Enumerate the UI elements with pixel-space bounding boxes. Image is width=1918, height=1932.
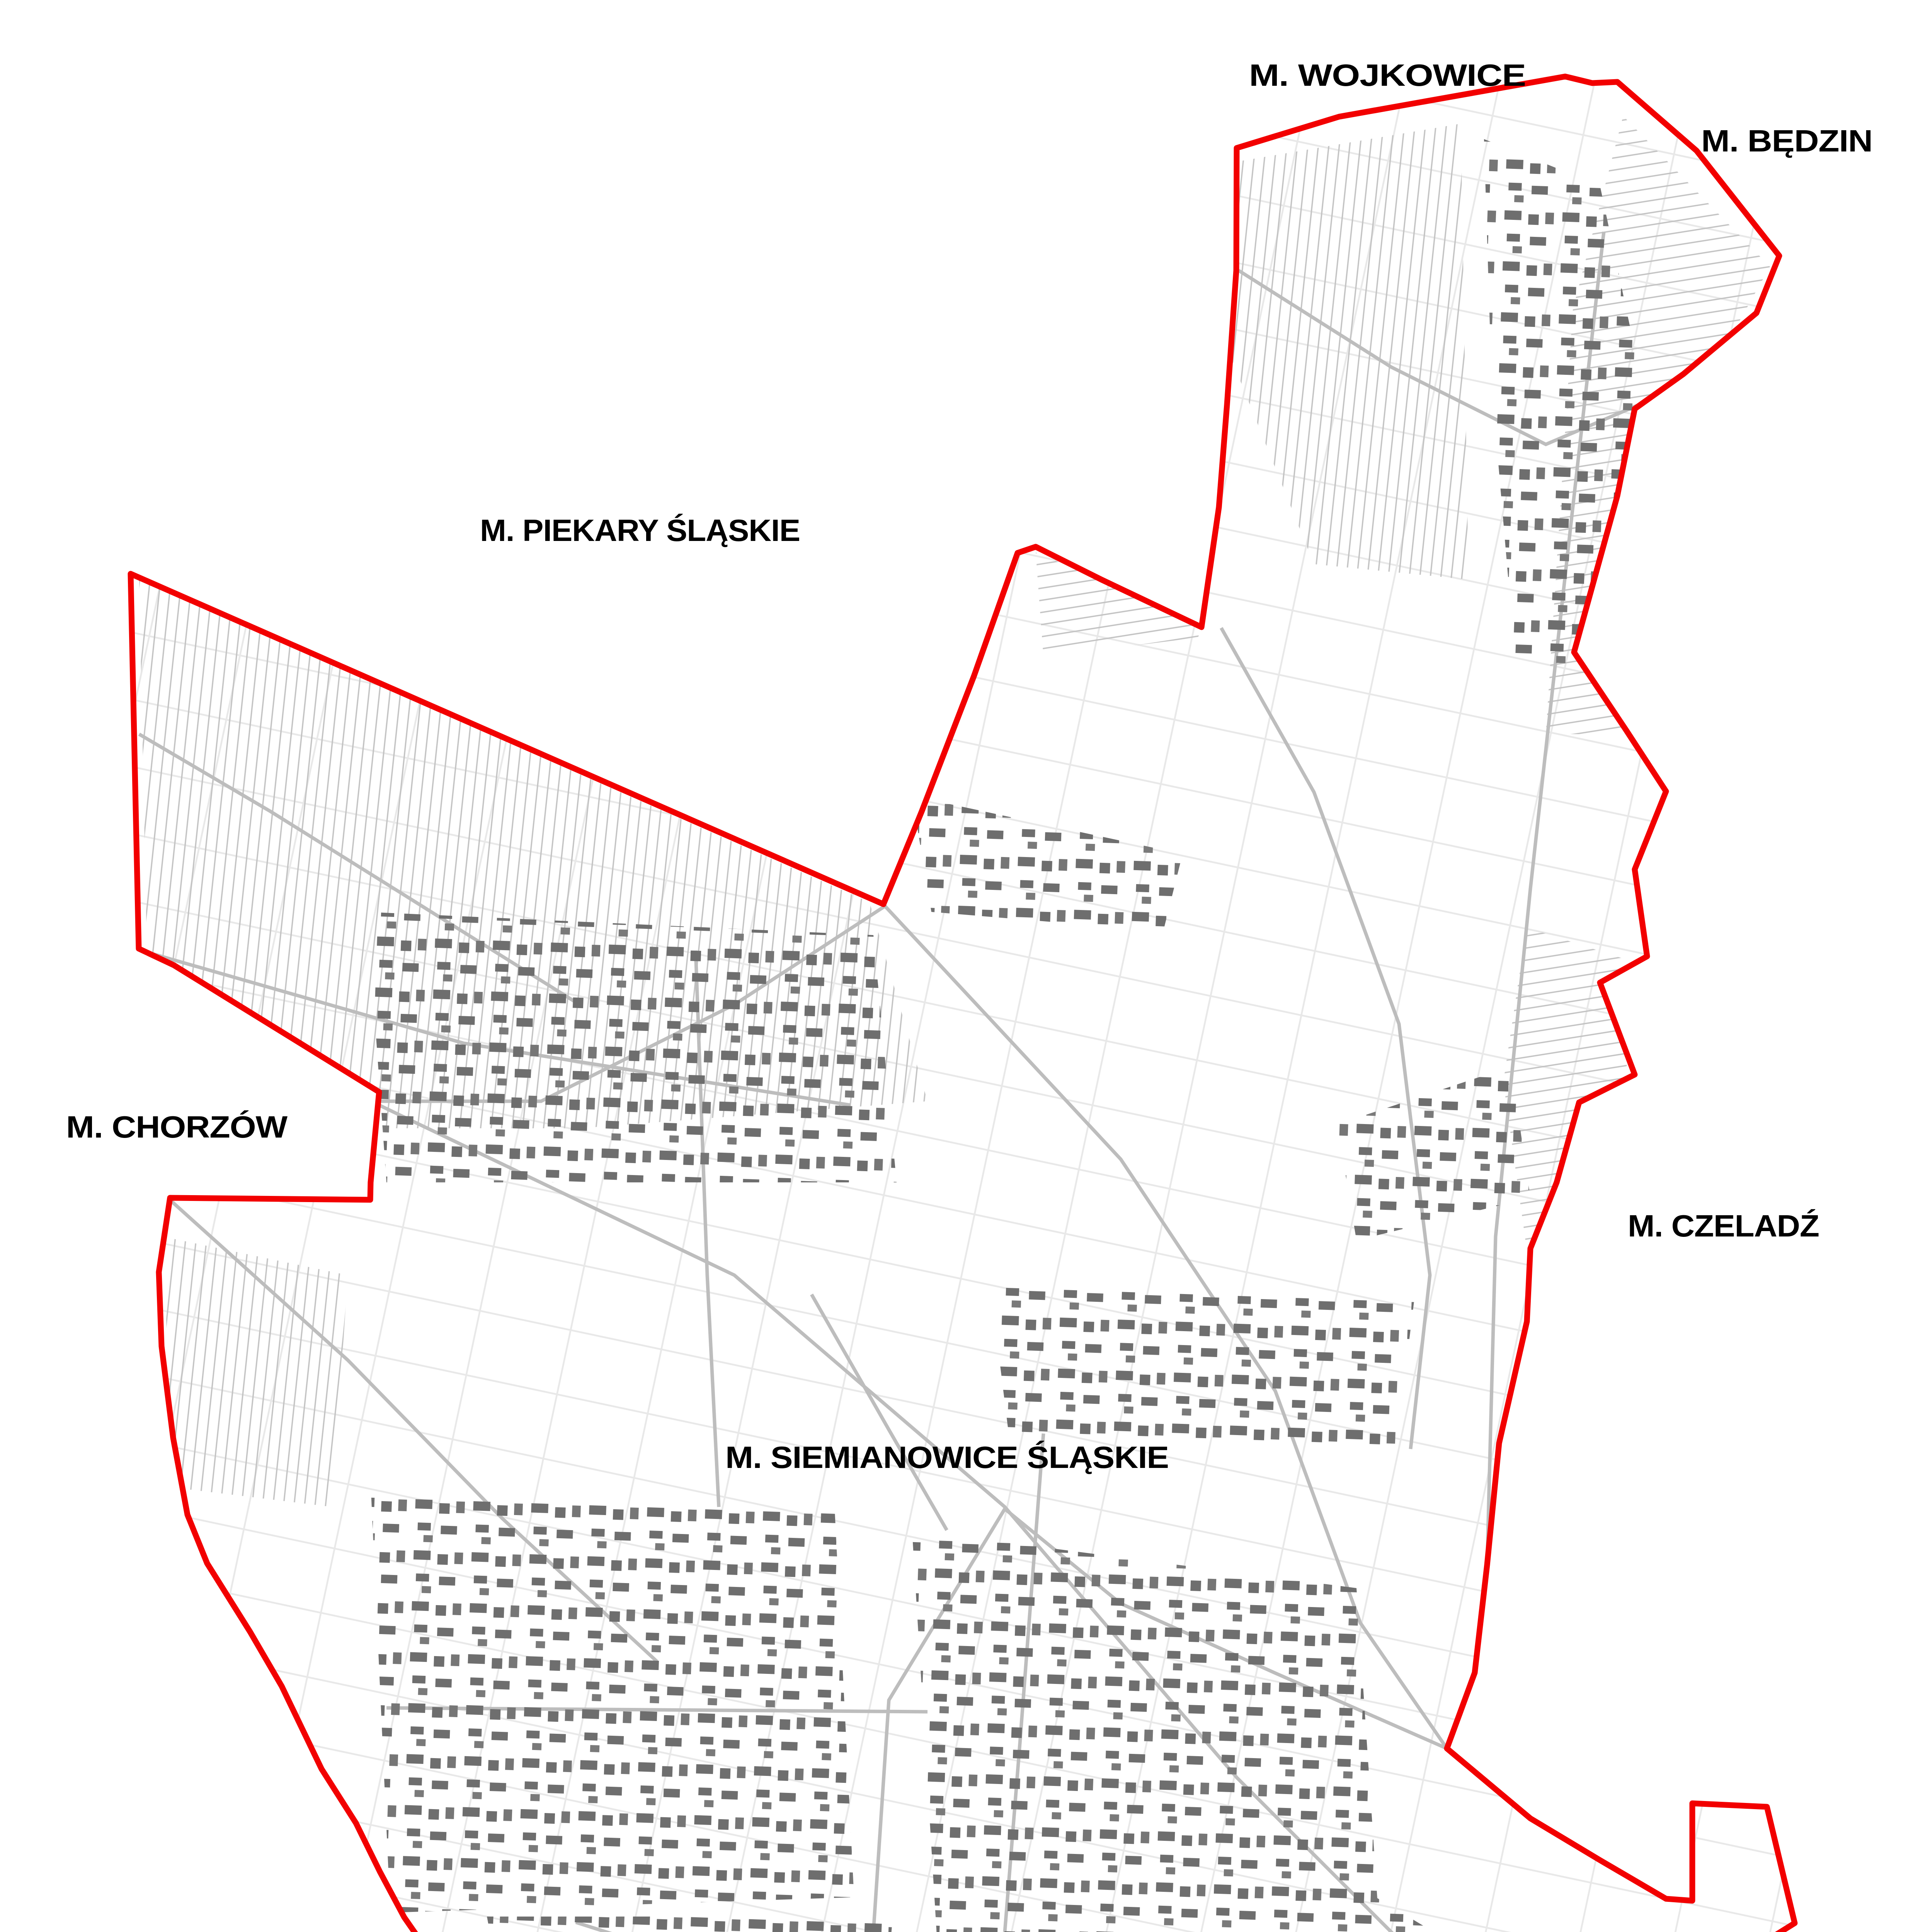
label-czeladz: M. CZELADŹ [1628,1209,1819,1243]
label-chorzow: M. CHORZÓW [66,1110,288,1144]
label-bedzin: M. BĘDZIN [1701,124,1872,158]
map-canvas: M. WOJKOWICE M. BĘDZIN M. PIEKARY ŚLĄSKI… [0,0,1918,1932]
map-page: M. WOJKOWICE M. BĘDZIN M. PIEKARY ŚLĄSKI… [0,0,1918,1932]
label-wojkowice: M. WOJKOWICE [1249,58,1526,92]
label-piekary-slaskie: M. PIEKARY ŚLĄSKIE [480,513,800,548]
label-siemianowice-slaskie: M. SIEMIANOWICE ŚLĄSKIE [725,1440,1169,1475]
